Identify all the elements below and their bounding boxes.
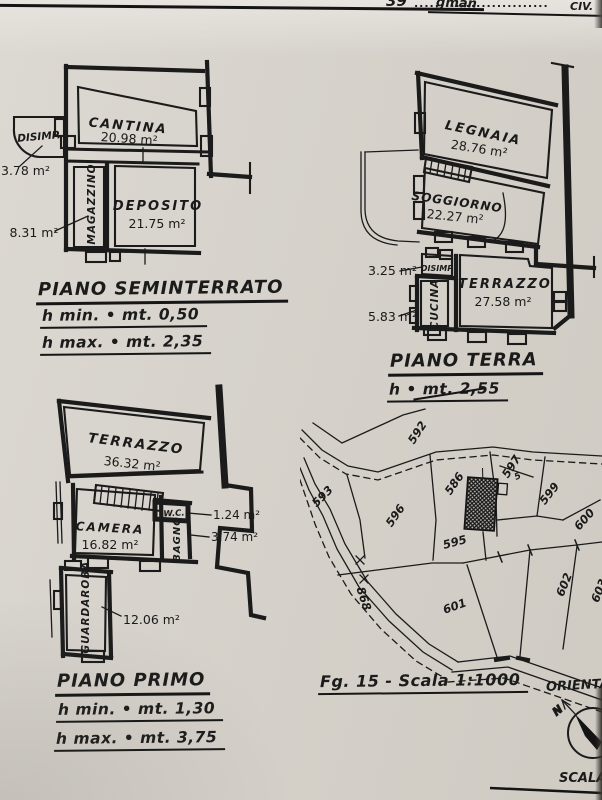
room-label-disimp: DISIMP. <box>17 129 61 145</box>
primo-height-max: h max. • mt. 3,75 <box>54 728 225 752</box>
scan-top-rule <box>0 4 484 11</box>
seminterrato-height-max: h max. • mt. 2,35 <box>40 332 211 356</box>
parcel-label-600: 600 <box>571 506 597 533</box>
parcel-label-868: 868 <box>354 585 375 612</box>
parcel-label-599: 599 <box>536 480 562 508</box>
scan-bottom-rule <box>490 788 602 793</box>
room-label-disimp-terra: DISIMP <box>421 264 453 273</box>
map-building-hatched <box>464 467 508 532</box>
room-label-terrazzo-terra: TERRAZZO <box>458 277 552 292</box>
parcel-label-595: 595 <box>441 532 468 552</box>
room-area-bagno: 3.74 m² <box>211 530 258 544</box>
room-label-deposito: DEPOSITO <box>113 199 203 214</box>
room-area-guardaroba: 12.06 m² <box>123 612 180 627</box>
plan-primo-drawing: TERRAZZO 36.32 m² CAMERA 16.82 m² W.C. 1… <box>18 385 265 685</box>
room-label-cucina: CUCINA <box>429 279 441 330</box>
room-area-magazzino: 8.31 m² <box>10 225 59 240</box>
room-area-deposito: 21.75 m² <box>129 216 186 231</box>
scan-edge-shadow-bottom <box>595 688 602 800</box>
terra-title: PIANO TERRA <box>388 349 543 377</box>
room-area-cantina: 20.98 m² <box>100 129 158 148</box>
map-parcel-boundaries <box>300 409 602 657</box>
plan-seminterrato-drawing: DISIMP. CANTINA 20.98 m² 3.78 m² MAGAZZI… <box>0 60 258 275</box>
room-area-terrazzo-primo: 36.32 m² <box>103 453 161 474</box>
room-area-wc: 1.24 m² <box>213 508 260 522</box>
cadastral-map-drawing: 592 593 596 586 595 597 5 599 600 601 60… <box>300 408 602 800</box>
parcel-label-601: 601 <box>441 595 468 616</box>
parcel-label-593: 593 <box>309 483 336 510</box>
room-area-cucina: 5.83 m² <box>368 309 417 324</box>
parcel-label-603: 603 <box>588 577 602 605</box>
plan-terra-drawing: LEGNAIA 28.76 m² SOGGIORNO 22.27 m² DISI… <box>340 60 602 355</box>
room-area-disimp-terra: 3.25 m² <box>368 263 417 278</box>
header-dotted-line: .......................... <box>414 0 549 10</box>
parcel-label-592: 592 <box>405 419 430 447</box>
map-caption: Fg. 15 - Scala 1:1000 <box>318 670 529 695</box>
header-page-number-fragment: 39 <box>386 0 407 10</box>
room-area-terrazzo-terra: 27.58 m² <box>475 294 532 309</box>
room-label-magazzino: MAGAZZINO <box>86 163 98 244</box>
scan-edge-shadow-top <box>594 0 602 28</box>
room-area-disimp: 3.78 m² <box>1 163 50 178</box>
primo-title: PIANO PRIMO <box>55 669 211 697</box>
room-label-terrazzo-primo: TERRAZZO <box>87 430 185 458</box>
map-orientation-label: ORIENTAM <box>546 676 602 695</box>
parcel-label-586: 586 <box>442 470 467 498</box>
terra-height: h • mt. 2,55 <box>387 379 508 402</box>
seminterrato-title: PIANO SEMINTERRATO <box>36 277 289 306</box>
room-label-bagno: BAGNO <box>172 516 183 561</box>
scanned-floorplan-page: 39 .......................... gman CIV. <box>0 0 602 800</box>
header-civ-label: CIV. <box>570 0 593 13</box>
map-parcel-labels: 592 593 596 586 595 597 5 599 600 601 60… <box>309 419 602 617</box>
parcel-label-596: 596 <box>383 502 408 530</box>
header-handwriting-fragment: gman <box>436 0 477 12</box>
room-area-camera: 16.82 m² <box>82 537 139 552</box>
room-label-guardaroba: GUARDAROBA <box>80 561 92 654</box>
primo-height-min: h min. • mt. 1,30 <box>56 699 223 723</box>
seminterrato-leader-lines <box>20 146 143 231</box>
seminterrato-height-min: h min. • mt. 0,50 <box>40 305 207 329</box>
room-label-camera: CAMERA <box>75 519 144 537</box>
